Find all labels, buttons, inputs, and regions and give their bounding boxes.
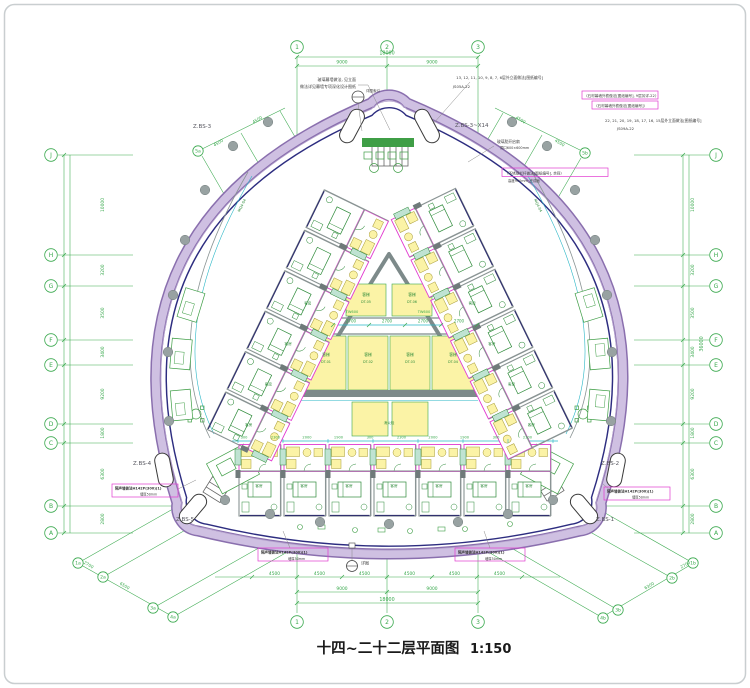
dimension-label: 2000: [428, 436, 438, 440]
dimension-label: 2700: [418, 319, 429, 324]
stair-label-bl: Z.BS-5: [176, 517, 195, 523]
column: [453, 517, 463, 527]
dimension-label: 4500: [449, 571, 460, 577]
dimension-label: 6300: [100, 468, 106, 479]
grid-bubble-label: J: [49, 152, 52, 159]
dimension-label: 2700: [346, 319, 357, 324]
grid-bubble: E: [45, 359, 58, 372]
dimension-label: 3500: [690, 307, 696, 318]
grid-bubble-label: 1: [295, 44, 299, 51]
annotation-bottom-left-1: 隔声墙做法H142P(300)(1): [261, 550, 308, 555]
grid-bubble-label: 1b: [690, 561, 696, 567]
annotation-mid-right-1: 隔声墙做法H142P(300)(1): [607, 489, 654, 494]
grid-bubble: D: [45, 418, 58, 431]
core-wall-label: TW600: [417, 310, 431, 314]
stair-label-tl: Z.BS-3: [193, 124, 212, 130]
grid-bubble: J: [45, 149, 58, 162]
grid-bubble-label: 1a: [75, 561, 81, 567]
grid-bubble-label: 2: [385, 619, 389, 626]
grid-bubble: J: [710, 149, 723, 162]
room-label: 客梯: [362, 292, 370, 297]
grid-bubble: 1: [291, 616, 304, 629]
annotation-right-1: 〈不锈钢栏杆做法[图纸编号], 余同〉: [505, 171, 564, 176]
dimension-label: 300: [493, 436, 501, 440]
grid-bubble: 5b: [580, 148, 590, 158]
suite-room: [170, 389, 193, 421]
annotation-right-1b: 高度900mm_完成面: [508, 178, 540, 183]
core-base-wall: [300, 390, 478, 397]
dimension-label: 9000: [426, 60, 437, 66]
dimension-label: 18000: [379, 597, 394, 603]
grid-bubble-label: 5b: [582, 151, 588, 157]
dimension-label: 10000: [690, 198, 696, 212]
column: [168, 290, 178, 300]
annotation-top-right-1b: JS05A-22: [452, 84, 471, 89]
dimension-label: 1900: [460, 436, 470, 440]
grid-bubble-label: 3: [476, 619, 480, 626]
column: [200, 185, 210, 195]
dimension-label: 2000: [302, 436, 312, 440]
room-label: 客房: [245, 422, 253, 427]
room-label: 客梯: [364, 352, 372, 357]
grid-bubble-label: H: [49, 252, 54, 259]
room-label: 客房: [345, 483, 353, 488]
column: [602, 290, 612, 300]
column: [164, 416, 174, 426]
grid-bubble-label: C: [714, 440, 718, 447]
dimension-label: 4500: [404, 571, 415, 577]
grid-bubble: B: [45, 500, 58, 513]
dimension-label: 2800: [100, 513, 106, 524]
grid-bubble: D: [710, 418, 723, 431]
dimension-label: 4500: [314, 571, 325, 577]
column: [606, 416, 616, 426]
dimension-label: 1800: [690, 427, 696, 438]
dimension-label: 9200: [100, 388, 106, 399]
annotation-top-left-1: 玻璃幕墙做法, 见立面: [317, 76, 356, 82]
grid-bubble-label: C: [49, 440, 53, 447]
annotation-top-right-2: 〈石材幕墙外檐做法[图纸编号], 9层另详-22〉: [584, 93, 658, 98]
grid-bubble-label: 3: [476, 44, 480, 51]
grid-bubble-label: 4a: [170, 615, 176, 621]
grid-bubble: G: [45, 280, 58, 293]
grid-bubble-label: 4b: [600, 616, 606, 622]
grid-bubble: 5a: [193, 146, 203, 156]
column: [570, 185, 580, 195]
annotation-right-2a: 玻璃肋开启扇: [497, 139, 520, 144]
room-label: 客房: [300, 483, 308, 488]
room-label: 客梯: [322, 352, 330, 357]
grid-bubble: A: [45, 527, 58, 540]
drawing-sheet: 玻璃幕墙做法, 见立面 做法详见幕墙专项深化设计图纸 详图索引 13, 12, …: [0, 0, 750, 688]
detail-ref-handle: [349, 543, 355, 548]
grid-bubble-label: D: [714, 421, 719, 428]
column: [503, 509, 513, 519]
dimension-label: 4500: [251, 115, 263, 125]
annotation-mid-right-2: 墙厚50mm: [632, 495, 649, 500]
grid-bubble-label: G: [714, 283, 719, 290]
elevator-id: DT-05: [361, 300, 371, 304]
drawing-title: 十四~二十二层平面图: [317, 639, 460, 657]
room-label: 客梯: [408, 292, 416, 297]
column: [180, 235, 190, 245]
grid-bubble: 1a: [73, 558, 83, 568]
column: [265, 509, 275, 519]
grid-bubble-label: E: [49, 362, 53, 369]
dimension-label: 36000: [699, 336, 705, 351]
grid-line: [196, 108, 285, 152]
dimension-label: 6300: [690, 468, 696, 479]
grid-bubble: 2: [381, 616, 394, 629]
room-label: 客房: [390, 483, 398, 488]
drawing-scale: 1:150: [470, 642, 511, 657]
grid-bubble: F: [710, 334, 723, 347]
suite-room: [170, 338, 193, 370]
column: [548, 495, 558, 505]
annotation-bottom-right-1: 隔声墙做法H142P(300)(1): [458, 550, 505, 555]
stair-label-br: Z.BS-1: [596, 517, 614, 523]
grid-bubble-label: J: [714, 152, 717, 159]
grid-bubble-label: F: [714, 337, 718, 344]
grid-bubble-label: 2a: [100, 575, 106, 581]
dimension-label: 9000: [336, 586, 347, 592]
elevator-id: DT-06: [407, 300, 417, 304]
dimension-label: 300: [241, 436, 249, 440]
grid-bubble: F: [45, 334, 58, 347]
room-label: 客房: [255, 483, 263, 488]
grid-bubble: 2b: [667, 573, 677, 583]
dimension-label: 9000: [336, 60, 347, 66]
column: [607, 347, 617, 357]
room-label: 客房: [265, 381, 273, 386]
grid-bubble: 4a: [168, 612, 178, 622]
suite-room: [587, 389, 610, 421]
room-label: 客房: [528, 422, 536, 427]
column: [315, 517, 325, 527]
dimension-label: 2300: [397, 436, 407, 440]
grid-bubble: 1: [291, 41, 304, 54]
dimension-label: 18000: [379, 51, 394, 57]
annotation-bottom-right-2: 墙厚50mm: [485, 556, 502, 561]
dimension-label: 1900: [334, 436, 344, 440]
grid-bubble-label: E: [714, 362, 718, 369]
annotation-top-right-4: 22, 21, 20, 19, 18, 17, 16, 15层外立面做法[图纸编…: [605, 118, 702, 123]
grid-bubble: C: [710, 437, 723, 450]
grid-bubble-label: G: [49, 283, 54, 290]
grid-bubble: 3: [472, 41, 485, 54]
stair-label-l: Z.BS-4: [133, 461, 152, 467]
room-label: 客梯: [406, 352, 414, 357]
floor-plan-drawing: 玻璃幕墙做法, 见立面 做法详见幕墙专项深化设计图纸 详图索引 13, 12, …: [0, 0, 750, 688]
grid-bubble: B: [710, 500, 723, 513]
dimension-label: 2300: [271, 436, 281, 440]
grid-bubble-label: F: [49, 337, 53, 344]
annotation-detail-index: 详图索引: [366, 88, 380, 93]
column: [263, 117, 273, 127]
grid-line: [74, 561, 177, 619]
room-label: 客房: [304, 300, 312, 305]
room-label: 客房: [469, 300, 477, 305]
room-label: 客梯: [449, 352, 457, 357]
dimension-label: 3200: [100, 264, 106, 275]
dimension-label: 1800: [100, 427, 106, 438]
grid-bubble: H: [710, 249, 723, 262]
grid-bubble-label: B: [49, 503, 53, 510]
grid-bubble: 3b: [613, 605, 623, 615]
elevator-id: DT-02: [363, 360, 373, 364]
column: [590, 235, 600, 245]
annotation-top-right-3: 〈石材幕墙外檐做法[图纸编号]〉: [594, 103, 647, 108]
hydrant-label: 消火栓: [384, 420, 395, 425]
dimension-label: 10000: [100, 198, 106, 212]
dimension-label: 2800: [690, 513, 696, 524]
dimension-label: 4500: [212, 138, 224, 148]
annotation-right-2b: 洞口600×600mm: [500, 145, 530, 150]
dimension-label: 4500: [494, 571, 505, 577]
grid-bubble: E: [710, 359, 723, 372]
room-label: 客房: [435, 483, 443, 488]
grid-bubble: C: [45, 437, 58, 450]
room-label: 客房: [525, 483, 533, 488]
dimension-label: 2300: [523, 436, 533, 440]
column: [384, 519, 394, 529]
grid-bubble: H: [45, 249, 58, 262]
stair-label-tr: Z.BS-3~X14: [455, 123, 489, 129]
dimension-label: 2700: [83, 560, 95, 570]
stair-label-r: Z.BS-2: [601, 461, 619, 467]
column: [220, 495, 230, 505]
annotation-top-right-4b: JS09A-22: [616, 126, 635, 131]
grid-bubble-label: H: [714, 252, 719, 259]
annotation-top-right-1: 13, 12, 11, 10, 9, 8, 7, 6层外立面做法[图纸编号]: [456, 75, 543, 80]
dimension-label: 300: [367, 436, 375, 440]
room-label: 客房: [488, 341, 496, 346]
room-label: 客房: [480, 483, 488, 488]
annotation-mid-left-1: 隔声墙做法H142P(300)(1): [115, 486, 162, 491]
annotation-top-left-2: 做法详见幕墙专项深化设计图纸: [300, 83, 356, 89]
grid-bubble: 2a: [98, 572, 108, 582]
grid-bubble-label: D: [49, 421, 54, 428]
grid-bubble: 4b: [598, 613, 608, 623]
dimension-label: 9200: [690, 388, 696, 399]
column: [228, 141, 238, 151]
annotation-mid-left-2: 墙厚50mm: [140, 492, 157, 497]
grid-bubble-label: 3a: [150, 606, 156, 612]
dimension-label: 3500: [100, 307, 106, 318]
room-label: 客房: [508, 381, 516, 386]
suite-room: [588, 338, 611, 370]
elevator-id: DT-01: [321, 360, 331, 364]
grid-bubble-label: 2: [385, 44, 389, 51]
annotation-bottom-center: 详图: [361, 560, 369, 566]
dimension-label: 4500: [554, 138, 566, 148]
stair-top: [372, 146, 408, 166]
elevator-id: DT-03: [405, 360, 415, 364]
title-block: 十四~二十二层平面图 1:150: [317, 639, 512, 657]
dimension-label: 2700: [454, 319, 465, 324]
room-label: 客房: [285, 341, 293, 346]
grid-bubble-label: B: [714, 503, 718, 510]
grid-bubble-label: 1: [295, 619, 299, 626]
dimension-label: 3400: [690, 346, 696, 357]
grid-bubble: 3: [472, 616, 485, 629]
dimension-label: 3400: [100, 346, 106, 357]
dimension-label: 4500: [269, 571, 280, 577]
dimension-label: 4500: [359, 571, 370, 577]
grid-bubble-label: 3b: [615, 608, 621, 614]
grid-bubble-label: 2b: [669, 576, 675, 582]
dimension-label: 9000: [426, 586, 437, 592]
elevator-id: DT-04: [448, 360, 458, 364]
grid-bubble: 3a: [148, 603, 158, 613]
dimension-label: 3200: [690, 264, 696, 275]
column: [542, 141, 552, 151]
grid-bubble-label: 5a: [195, 149, 201, 155]
column: [163, 347, 173, 357]
dimension-label: 6500: [119, 581, 131, 591]
grid-bubble: G: [710, 280, 723, 293]
core-wall-label: TW600: [345, 310, 359, 314]
dimension-label: 2700: [382, 319, 393, 324]
grid-bubble: A: [710, 527, 723, 540]
annotation-bottom-left-2: 墙厚50mm: [288, 556, 305, 561]
